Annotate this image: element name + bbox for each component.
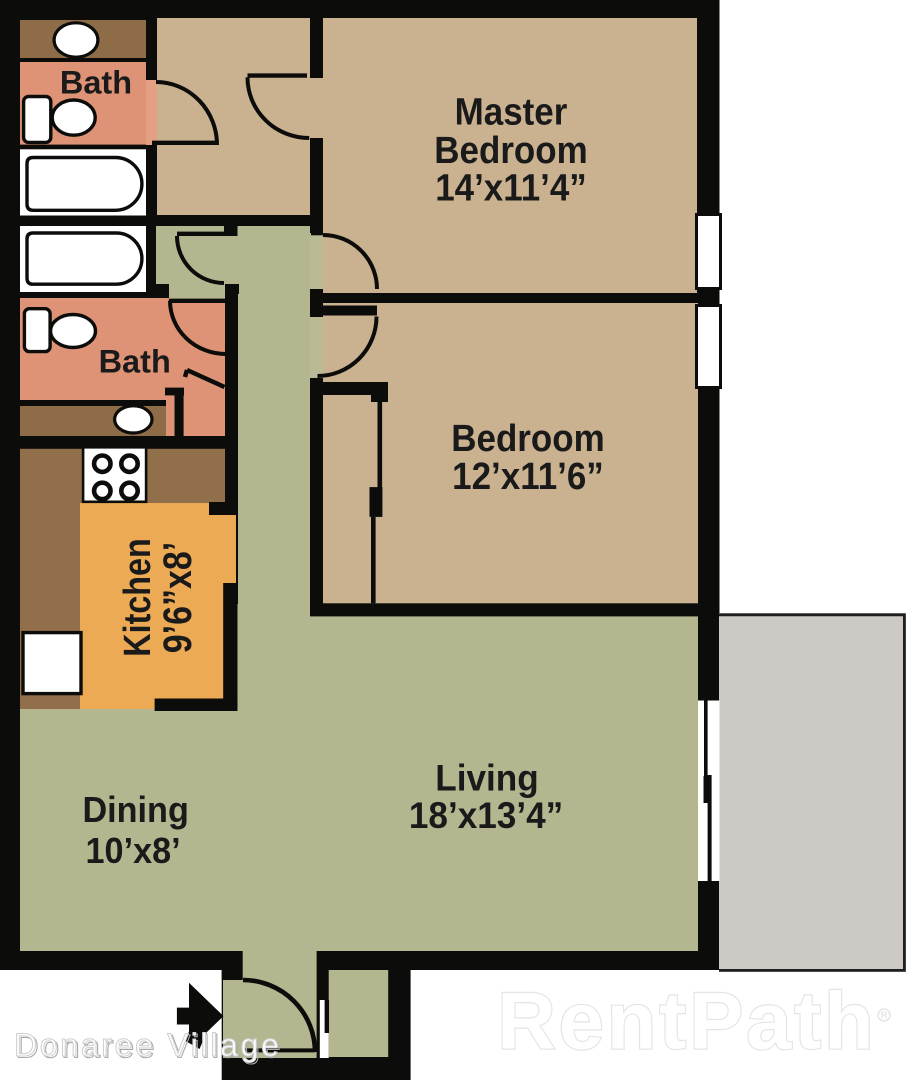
svg-text:18’x13’4”: 18’x13’4” (409, 794, 563, 836)
svg-text:Donaree Village: Donaree Village (14, 1027, 282, 1063)
svg-text:Kitchen: Kitchen (117, 538, 159, 656)
svg-text:Bath: Bath (60, 65, 132, 101)
svg-text:14’x11’4”: 14’x11’4” (435, 166, 587, 209)
svg-text:Master: Master (455, 90, 568, 133)
svg-text:Bath: Bath (99, 344, 171, 380)
svg-text:R: R (881, 1010, 888, 1020)
svg-text:RentPath: RentPath (497, 977, 877, 1067)
svg-text:Bedroom: Bedroom (434, 129, 587, 172)
svg-text:Bedroom: Bedroom (451, 417, 604, 460)
svg-text:12’x11’6”: 12’x11’6” (452, 455, 604, 498)
svg-text:9’6”x8’: 9’6”x8’ (154, 542, 199, 653)
svg-text:Living: Living (435, 757, 538, 799)
svg-text:10’x8’: 10’x8’ (86, 831, 181, 871)
svg-text:Dining: Dining (82, 790, 188, 830)
